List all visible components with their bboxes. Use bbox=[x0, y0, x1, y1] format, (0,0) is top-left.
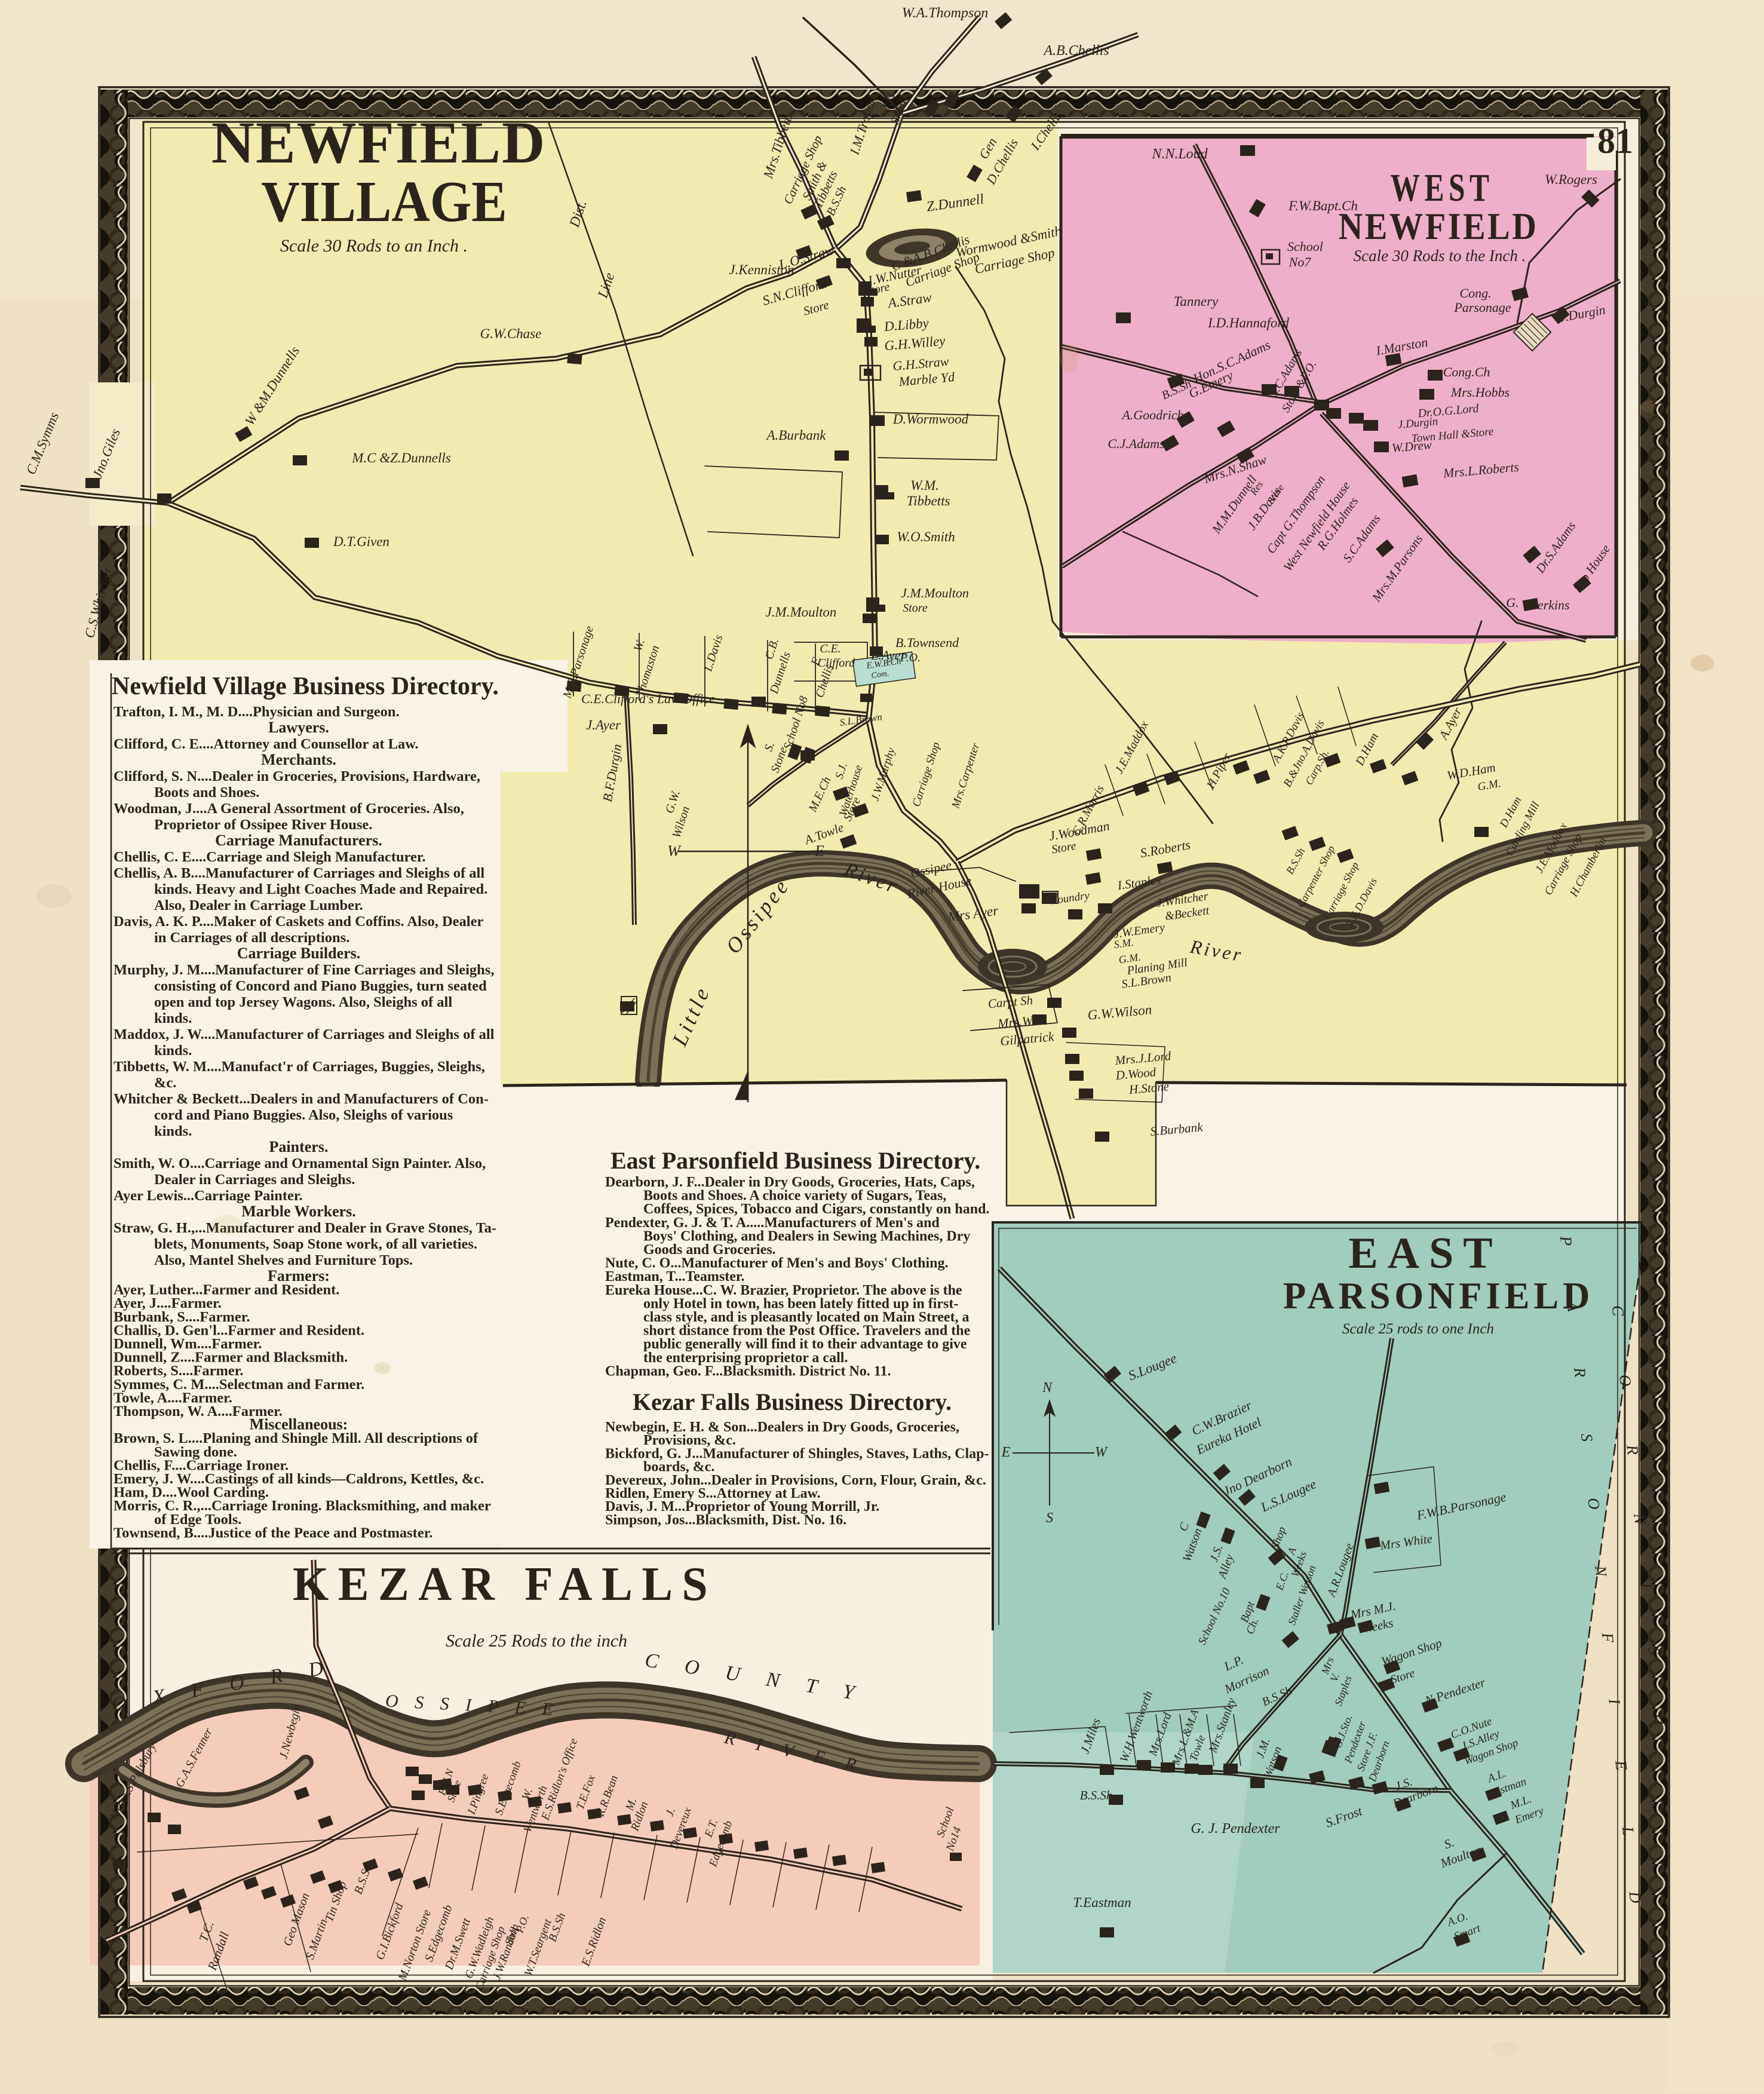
svg-text:Marble Workers.: Marble Workers. bbox=[241, 1203, 356, 1220]
svg-text:Davis, A. K. P....Maker of Cas: Davis, A. K. P....Maker of Caskets and C… bbox=[113, 913, 483, 930]
svg-text:N.N.Loud: N.N.Loud bbox=[1151, 146, 1208, 162]
svg-text:Newfield Village Business Dire: Newfield Village Business Directory. bbox=[112, 673, 499, 700]
svg-text:Boots and Shoes.: Boots and Shoes. bbox=[154, 784, 259, 801]
svg-text:N: N bbox=[1042, 1380, 1053, 1396]
svg-text:Scale 25 Rods to the inch: Scale 25 Rods to the inch bbox=[446, 1631, 627, 1651]
svg-text:kinds.: kinds. bbox=[154, 1043, 192, 1059]
svg-text:Clifford, S. N....Dealer in Gr: Clifford, S. N....Dealer in Groceries, P… bbox=[113, 768, 480, 784]
svg-text:Lawyers.: Lawyers. bbox=[268, 719, 329, 736]
svg-text:No7: No7 bbox=[1289, 255, 1312, 269]
svg-text:Scale 30 Rods to the Inch .: Scale 30 Rods to the Inch . bbox=[1354, 247, 1526, 265]
svg-text:Cong.Ch: Cong.Ch bbox=[1443, 364, 1490, 379]
svg-text:Clifford, C. E....Attorney and: Clifford, C. E....Attorney and Counsello… bbox=[113, 736, 419, 752]
svg-text:Perkins: Perkins bbox=[1529, 597, 1569, 612]
svg-text:I.D.Hannaford: I.D.Hannaford bbox=[1207, 315, 1289, 330]
svg-text:W.Rogers: W.Rogers bbox=[1545, 172, 1597, 187]
svg-text:Store: Store bbox=[903, 602, 928, 615]
svg-text:W: W bbox=[1095, 1445, 1108, 1460]
svg-text:J.Ayer: J.Ayer bbox=[586, 718, 621, 732]
svg-text:kinds.: kinds. bbox=[154, 1010, 192, 1026]
svg-text:W.O.Smith: W.O.Smith bbox=[897, 529, 955, 544]
svg-text:Dealer in Carriages and Sleigh: Dealer in Carriages and Sleighs. bbox=[154, 1172, 355, 1188]
svg-text:PARSONFIELD: PARSONFIELD bbox=[1283, 1274, 1594, 1317]
svg-text:J.M.Moulton: J.M.Moulton bbox=[901, 585, 969, 600]
svg-text:Straw, G. H.,...Manufacturer a: Straw, G. H.,...Manufacturer and Dealer … bbox=[113, 1220, 496, 1236]
svg-text:D.T.Given: D.T.Given bbox=[333, 534, 389, 549]
svg-text:A.Burbank: A.Burbank bbox=[765, 428, 826, 443]
svg-text:G.: G. bbox=[1506, 595, 1518, 610]
svg-text:&c.: &c. bbox=[154, 1075, 176, 1091]
svg-text:81: 81 bbox=[1597, 121, 1633, 161]
svg-text:C.E.Clifford's Law Office: C.E.Clifford's Law Office bbox=[581, 691, 715, 706]
svg-text:W: W bbox=[667, 842, 682, 860]
svg-text:A.Goodrich: A.Goodrich bbox=[1121, 407, 1183, 422]
svg-text:Chellis, C. E....Carriage and: Chellis, C. E....Carriage and Sleigh Man… bbox=[113, 849, 426, 865]
svg-text:G. J. Pendexter: G. J. Pendexter bbox=[1191, 1821, 1280, 1837]
svg-text:Scale 30 Rods to an Inch .: Scale 30 Rods to an Inch . bbox=[280, 236, 468, 256]
svg-text:open and top Jersey Wagons. A: open and top Jersey Wagons. Also, Sleigh… bbox=[154, 994, 452, 1010]
svg-text:E: E bbox=[814, 842, 824, 860]
svg-text:EAST: EAST bbox=[1348, 1229, 1502, 1278]
svg-text:C.J.Adams: C.J.Adams bbox=[1108, 436, 1164, 451]
svg-text:C.E.: C.E. bbox=[820, 642, 841, 655]
svg-text:cord and Piano Buggies. Also,: cord and Piano Buggies. Also, Sleighs of… bbox=[154, 1107, 453, 1123]
svg-text:Chapman, Geo. F...Blacksmith.: Chapman, Geo. F...Blacksmith. District N… bbox=[605, 1363, 891, 1379]
svg-text:Cong.: Cong. bbox=[1459, 286, 1491, 301]
svg-text:Woodman, J....A General Assort: Woodman, J....A General Assortment of Gr… bbox=[113, 801, 464, 817]
svg-text:Carriage Builders.: Carriage Builders. bbox=[237, 945, 361, 962]
svg-text:G.W.Chase: G.W.Chase bbox=[480, 326, 542, 341]
svg-text:W.M.: W.M. bbox=[910, 478, 939, 493]
svg-text:Chellis, A. B....Manufacturer: Chellis, A. B....Manufacturer of Carriag… bbox=[113, 865, 484, 881]
svg-text:Townsend, B....Justice of the: Townsend, B....Justice of the Peace and … bbox=[113, 1525, 432, 1541]
svg-text:E: E bbox=[1001, 1445, 1011, 1460]
svg-text:Mrs.Hobbs: Mrs.Hobbs bbox=[1450, 385, 1510, 400]
svg-text:kinds.: kinds. bbox=[154, 1123, 192, 1139]
svg-text:WEST: WEST bbox=[1390, 165, 1493, 210]
svg-text:Also, Mantel Shelves and Furni: Also, Mantel Shelves and Furniture Tops. bbox=[154, 1252, 413, 1268]
svg-text:East Parsonfield Business Dire: East Parsonfield Business Directory. bbox=[611, 1147, 980, 1174]
svg-text:Carriage Manufacturers.: Carriage Manufacturers. bbox=[215, 832, 382, 849]
svg-text:Merchants.: Merchants. bbox=[261, 751, 336, 768]
svg-text:Whitcher & Beckett...Dealers i: Whitcher & Beckett...Dealers in and Manu… bbox=[113, 1091, 489, 1107]
svg-text:Maddox, J. W....Manufacturer o: Maddox, J. W....Manufacturer of Carriage… bbox=[113, 1026, 495, 1043]
svg-text:Also, Dealer in Carriage Lumbe: Also, Dealer in Carriage Lumber. bbox=[154, 897, 363, 913]
svg-text:Simpson, Jos...Blacksmith, Dis: Simpson, Jos...Blacksmith, Dist. No. 16. bbox=[605, 1512, 846, 1528]
svg-text:Painters.: Painters. bbox=[269, 1138, 329, 1155]
svg-text:Ayer Lewis...Carriage Painter.: Ayer Lewis...Carriage Painter. bbox=[113, 1188, 303, 1204]
svg-text:Proprietor of Ossipee River Ho: Proprietor of Ossipee River House. bbox=[154, 817, 372, 833]
svg-text:School: School bbox=[1287, 239, 1323, 254]
svg-text:consisting of Concord and Pian: consisting of Concord and Piano Buggies,… bbox=[154, 978, 487, 994]
svg-text:T.Eastman: T.Eastman bbox=[1073, 1895, 1131, 1910]
svg-text:Scale 25 rods to one Inch: Scale 25 rods to one Inch bbox=[1342, 1321, 1494, 1337]
svg-text:Kezar Falls Business Directory: Kezar Falls Business Directory. bbox=[633, 1388, 952, 1415]
svg-text:Tibbetts, W. M....Manufact'r o: Tibbetts, W. M....Manufact'r of Carriage… bbox=[113, 1059, 485, 1075]
svg-text:J.M.Moulton: J.M.Moulton bbox=[766, 605, 837, 620]
svg-text:Tannery: Tannery bbox=[1174, 294, 1219, 309]
svg-text:kinds. Heavy and Light Coache: kinds. Heavy and Light Coaches Made and … bbox=[154, 881, 487, 897]
svg-text:in Carriages of all descriptio: in Carriages of all descriptions. bbox=[154, 930, 349, 946]
svg-text:KEZAR FALLS: KEZAR FALLS bbox=[293, 1558, 717, 1611]
svg-text:M.C &Z.Dunnells: M.C &Z.Dunnells bbox=[351, 450, 451, 465]
svg-text:VILLAGE: VILLAGE bbox=[261, 170, 507, 234]
svg-text:Parsonage: Parsonage bbox=[1453, 300, 1511, 315]
svg-text:Trafton, I. M., M. D....Physic: Trafton, I. M., M. D....Physician and Su… bbox=[113, 704, 400, 720]
svg-text:A.B.Chellis: A.B.Chellis bbox=[1042, 43, 1109, 59]
svg-text:blets, Monuments, Soap Stone w: blets, Monuments, Soap Stone work, of al… bbox=[154, 1236, 477, 1252]
svg-text:NEWFIELD: NEWFIELD bbox=[211, 109, 547, 176]
svg-text:D.Wormwood: D.Wormwood bbox=[892, 412, 969, 427]
svg-text:Tibbetts: Tibbetts bbox=[907, 493, 950, 508]
svg-text:Murphy, J. M....Manufacturer o: Murphy, J. M....Manufacturer of Fine Car… bbox=[113, 962, 494, 978]
svg-text:Smith, W. O....Carriage and Or: Smith, W. O....Carriage and Ornamental S… bbox=[113, 1155, 486, 1172]
svg-text:B.S.Sh: B.S.Sh bbox=[1080, 1788, 1113, 1802]
svg-text:W.A.Thompson: W.A.Thompson bbox=[902, 5, 988, 21]
svg-text:NEWFIELD: NEWFIELD bbox=[1339, 206, 1539, 248]
svg-text:S: S bbox=[1046, 1510, 1053, 1526]
svg-text:L.Ayer: L.Ayer bbox=[870, 648, 906, 663]
